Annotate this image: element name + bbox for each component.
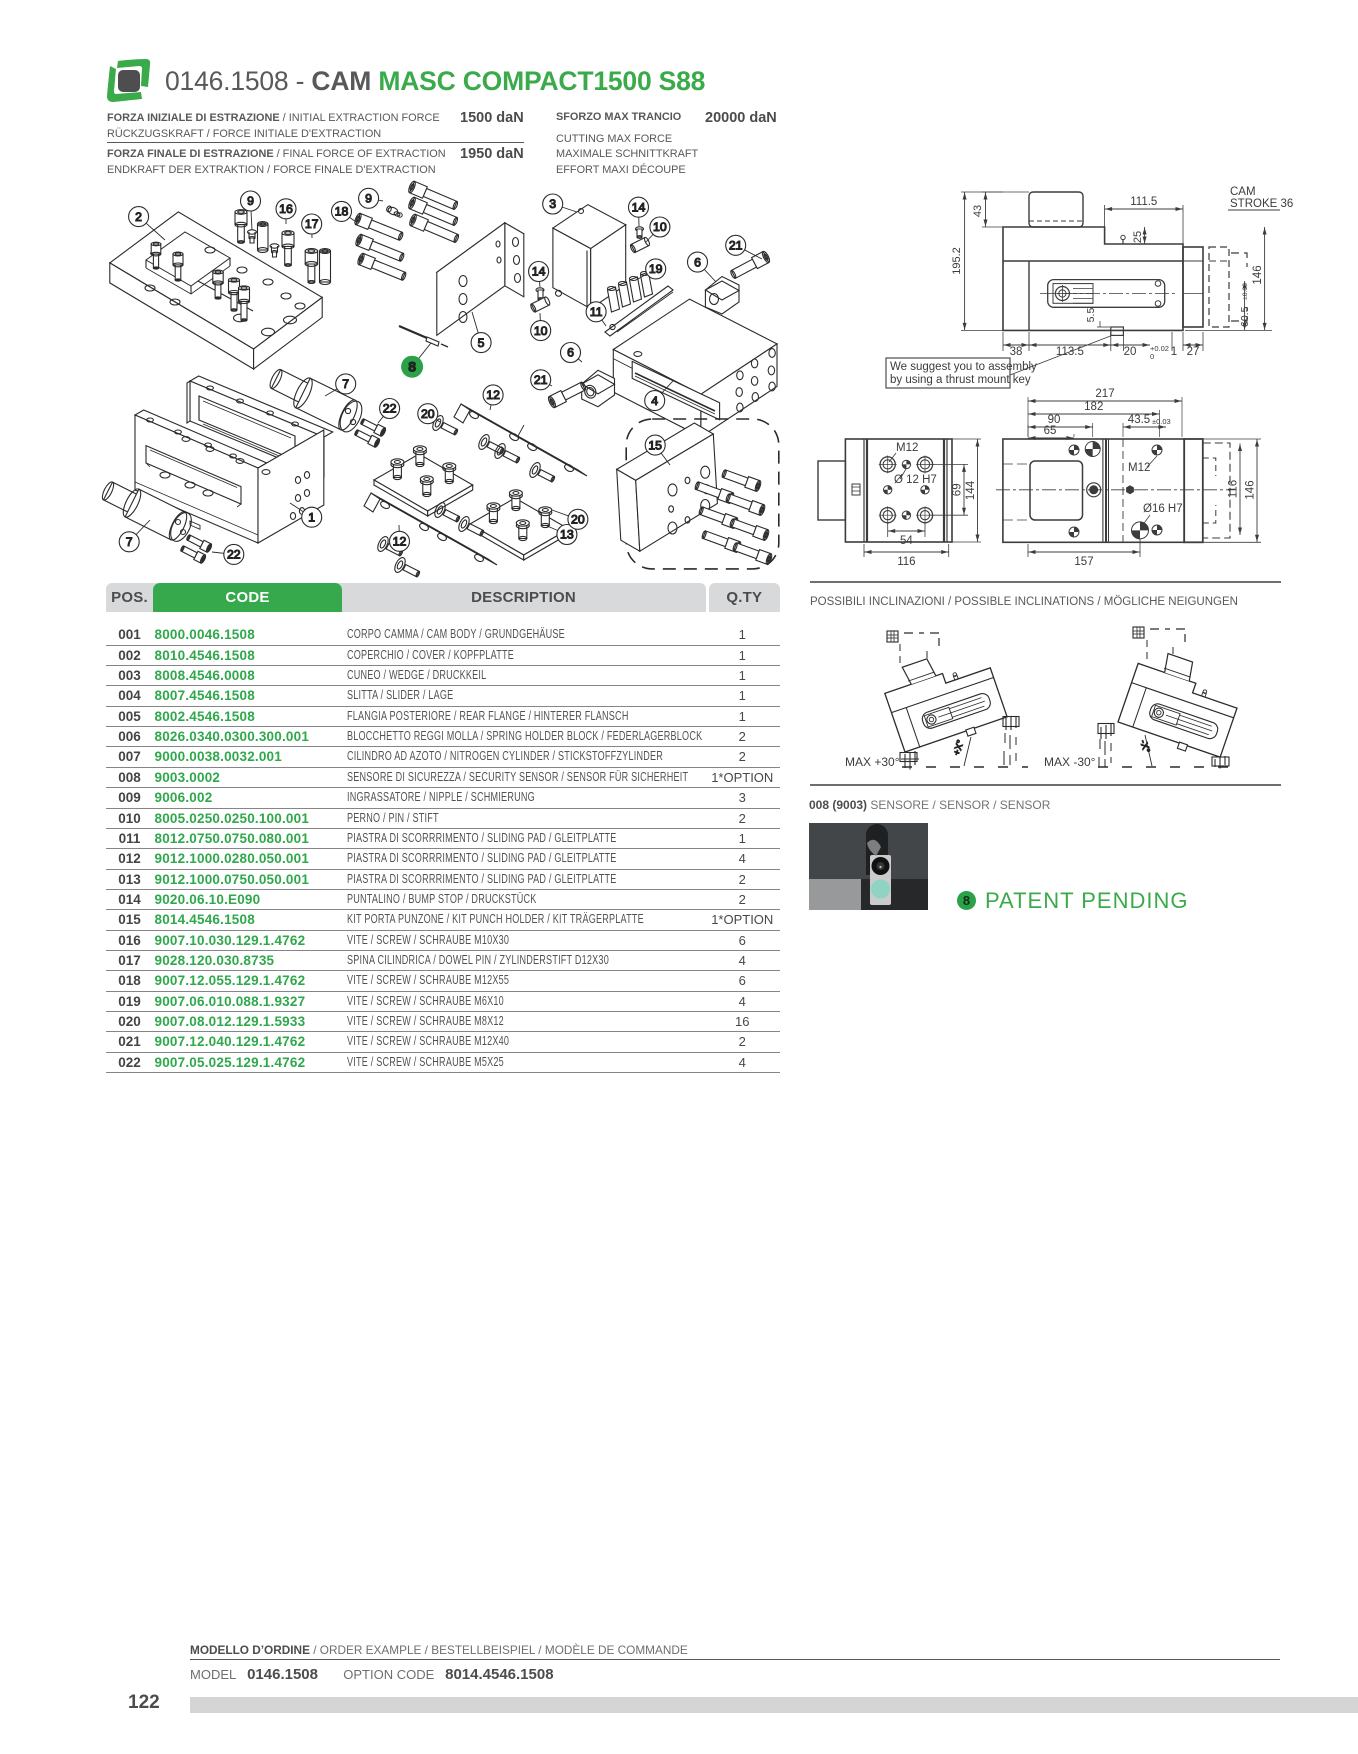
svg-text:Ø16 H7: Ø16 H7 [1143, 503, 1183, 515]
svg-text:43: 43 [972, 205, 984, 217]
svg-text:65: 65 [1044, 425, 1057, 437]
svg-text:15: 15 [648, 438, 662, 452]
svg-text:M12: M12 [1128, 462, 1150, 474]
svg-text:7: 7 [342, 377, 349, 391]
svg-text:1: 1 [1171, 346, 1177, 358]
svg-text:25: 25 [1132, 231, 1144, 243]
svg-text:Ø 12 H7: Ø 12 H7 [894, 474, 937, 486]
svg-text:182: 182 [1084, 401, 1103, 413]
svg-text:2: 2 [135, 210, 142, 224]
svg-text:43.5: 43.5 [1128, 414, 1150, 426]
svg-text:19: 19 [649, 262, 663, 276]
svg-text:18: 18 [335, 205, 349, 219]
svg-text:157: 157 [1074, 556, 1093, 568]
svg-text:6: 6 [567, 346, 574, 360]
svg-text:22: 22 [227, 548, 241, 562]
svg-text:111.5: 111.5 [1130, 196, 1157, 208]
svg-text:22: 22 [383, 402, 397, 416]
svg-text:27: 27 [1187, 346, 1200, 358]
svg-text:217: 217 [1095, 388, 1114, 400]
svg-text:21: 21 [534, 373, 548, 387]
svg-text:69: 69 [952, 483, 964, 496]
svg-text:14: 14 [632, 200, 646, 214]
svg-text:12: 12 [393, 535, 407, 549]
svg-text:10: 10 [534, 324, 548, 338]
svg-text:14: 14 [532, 265, 546, 279]
svg-text:5.5: 5.5 [1085, 308, 1097, 323]
svg-text:9: 9 [247, 194, 254, 208]
svg-text:±0.03: ±0.03 [1242, 283, 1249, 300]
svg-text:CAM: CAM [1230, 186, 1256, 198]
svg-text:38: 38 [1010, 346, 1023, 358]
svg-text:20: 20 [1124, 346, 1137, 358]
svg-text:21: 21 [729, 239, 743, 253]
svg-text:6: 6 [694, 255, 701, 269]
svg-text:STROKE 36: STROKE 36 [1230, 198, 1293, 210]
svg-text:8: 8 [408, 359, 416, 375]
svg-text:We suggest you to assembly: We suggest you to assembly [890, 361, 1037, 373]
svg-text:4: 4 [651, 394, 658, 408]
svg-text:11: 11 [590, 305, 603, 319]
svg-text:20: 20 [571, 513, 585, 527]
svg-text:146: 146 [1252, 265, 1264, 284]
svg-text:17: 17 [305, 217, 319, 231]
svg-text:1: 1 [308, 510, 315, 524]
svg-text:146: 146 [1245, 480, 1257, 499]
svg-text:10: 10 [653, 220, 667, 234]
svg-text:12: 12 [486, 388, 500, 402]
svg-text:9: 9 [365, 192, 372, 206]
svg-text:144: 144 [965, 480, 977, 500]
svg-text:±0.03: ±0.03 [1152, 417, 1171, 426]
svg-text:116: 116 [1228, 480, 1240, 498]
svg-text:-X°: -X° [1137, 739, 1152, 755]
svg-text:3: 3 [549, 197, 556, 211]
svg-text:54: 54 [900, 535, 913, 547]
svg-text:5: 5 [478, 336, 485, 350]
svg-text:60.5: 60.5 [1239, 306, 1251, 327]
svg-text:20: 20 [421, 407, 435, 421]
svg-text:195.2: 195.2 [951, 247, 963, 275]
svg-text:M12: M12 [896, 442, 918, 454]
svg-text:+X°: +X° [951, 738, 966, 757]
svg-text:by using a thrust mount key: by using a thrust mount key [890, 374, 1031, 386]
svg-text:0: 0 [1150, 352, 1154, 361]
svg-text:13: 13 [560, 528, 574, 542]
svg-text:16: 16 [279, 202, 293, 216]
svg-text:116: 116 [897, 556, 915, 568]
svg-text:7: 7 [126, 535, 133, 549]
